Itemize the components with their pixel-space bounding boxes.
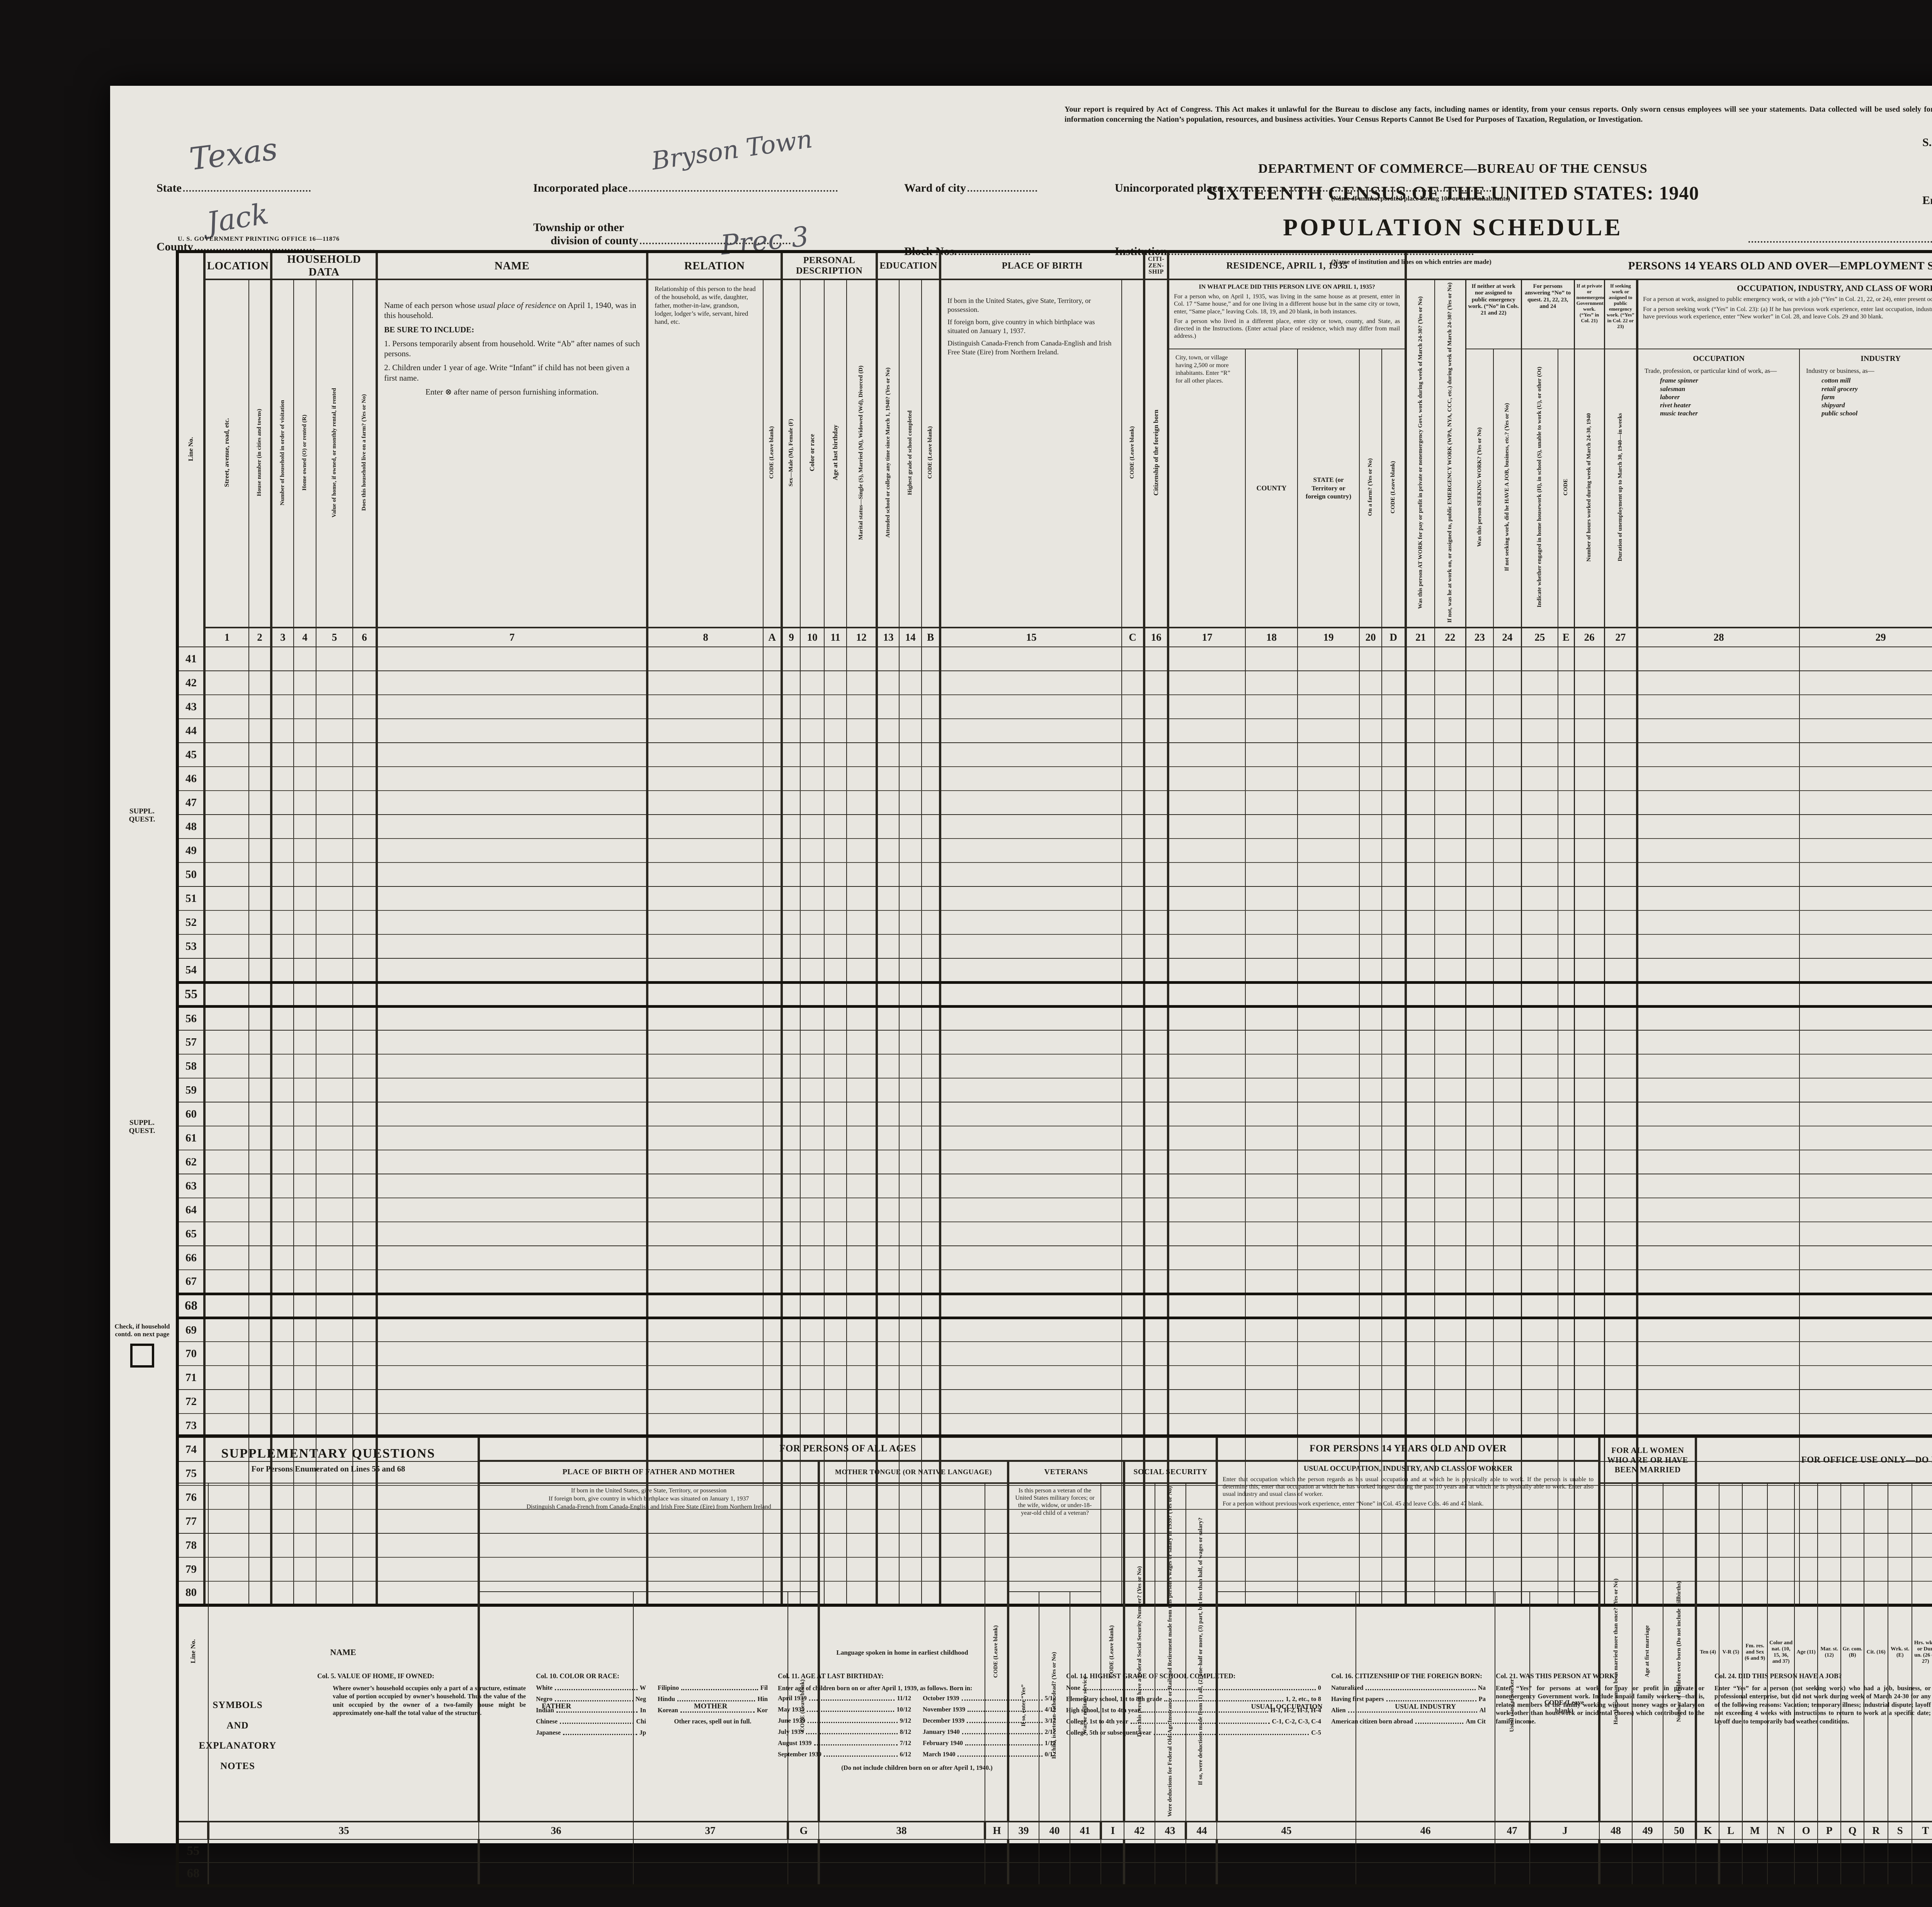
grid-cell bbox=[1466, 671, 1493, 695]
grid-cell bbox=[800, 647, 824, 671]
column-number: 36 bbox=[479, 1822, 633, 1839]
grid-cell bbox=[922, 1054, 940, 1078]
grid-cell bbox=[763, 1054, 782, 1078]
grid-cell bbox=[824, 839, 847, 862]
grid-cell bbox=[1245, 934, 1298, 958]
grid-cell bbox=[1558, 910, 1574, 934]
grid-cell bbox=[899, 1366, 922, 1390]
grid-cell bbox=[1493, 647, 1521, 671]
grid-cell bbox=[1574, 791, 1604, 815]
grid-cell bbox=[877, 1366, 899, 1390]
grid-cell bbox=[647, 1342, 763, 1366]
county-handwritten: Jack bbox=[204, 197, 271, 240]
column-number: 19 bbox=[1298, 628, 1359, 647]
grid-cell bbox=[647, 1126, 763, 1150]
grid-cell bbox=[1245, 1222, 1298, 1246]
grid-cell bbox=[271, 1102, 294, 1126]
grid-cell bbox=[1406, 839, 1435, 862]
col-farm: Does this household live on a farm? (Yes… bbox=[353, 279, 377, 628]
grid-cell bbox=[204, 1126, 249, 1150]
grid-cell bbox=[1144, 934, 1168, 958]
printing-office-line: U. S. GOVERNMENT PRINTING OFFICE 16—1187… bbox=[178, 236, 340, 243]
grid-cell bbox=[1466, 910, 1493, 934]
grid-cell bbox=[1637, 1246, 1799, 1270]
grid-cell bbox=[1767, 1863, 1794, 1886]
grid-cell bbox=[294, 862, 316, 886]
grid-cell bbox=[1604, 1390, 1637, 1414]
grid-cell bbox=[782, 958, 800, 982]
grid-cell bbox=[1493, 1366, 1521, 1390]
grid-cell bbox=[1122, 1318, 1144, 1342]
grid-cell bbox=[847, 886, 877, 910]
grid-cell bbox=[271, 1222, 294, 1246]
grid-cell bbox=[1435, 1198, 1466, 1222]
grid-cell bbox=[1604, 934, 1637, 958]
grid-cell bbox=[1466, 1318, 1493, 1342]
grid-cell bbox=[847, 862, 877, 886]
grid-cell bbox=[204, 982, 249, 1006]
grid-cell bbox=[877, 695, 899, 719]
sidebar-line: NOTES bbox=[168, 1756, 307, 1777]
grid-cell bbox=[824, 1030, 847, 1054]
grid-cell bbox=[1521, 815, 1558, 839]
grid-cell bbox=[204, 958, 249, 982]
column-number: 10 bbox=[800, 628, 824, 647]
grid-cell bbox=[940, 647, 1122, 671]
grid-cell bbox=[377, 886, 647, 910]
grid-cell bbox=[1245, 1198, 1298, 1222]
grid-cell bbox=[1298, 1294, 1359, 1318]
code-row: December 19393/12 bbox=[923, 1717, 1056, 1725]
grid-cell bbox=[922, 934, 940, 958]
col-household-number: Number of household in order of visitati… bbox=[271, 279, 294, 628]
grid-cell bbox=[1435, 934, 1466, 958]
grid-cell bbox=[824, 1078, 847, 1102]
grid-cell bbox=[353, 1270, 377, 1294]
grid-cell bbox=[1122, 647, 1144, 671]
grid-cell bbox=[647, 934, 763, 958]
grid-cell bbox=[1521, 1318, 1558, 1342]
grid-cell bbox=[1245, 1102, 1298, 1126]
grid-cell bbox=[249, 1270, 271, 1294]
grid-cell bbox=[922, 1366, 940, 1390]
grid-cell bbox=[800, 1198, 824, 1222]
grid-cell bbox=[204, 1318, 249, 1342]
grid-cell bbox=[1799, 934, 1932, 958]
grid-cell bbox=[294, 982, 316, 1006]
column-number: A bbox=[763, 628, 782, 647]
grid-cell bbox=[800, 695, 824, 719]
grid-cell bbox=[1144, 1078, 1168, 1102]
grid-cell bbox=[1144, 1102, 1168, 1126]
grid-cell bbox=[1008, 1839, 1039, 1863]
grid-cell bbox=[316, 1366, 353, 1390]
column-number: 15 bbox=[940, 628, 1122, 647]
grid-cell bbox=[1406, 695, 1435, 719]
grid-cell bbox=[249, 958, 271, 982]
grid-cell bbox=[1124, 1863, 1155, 1886]
grid-cell bbox=[940, 1174, 1122, 1198]
grid-cell bbox=[824, 958, 847, 982]
grid-cell bbox=[1122, 1246, 1144, 1270]
grid-cell bbox=[1435, 958, 1466, 982]
grid-cell bbox=[204, 1390, 249, 1414]
grid-cell bbox=[316, 1174, 353, 1198]
grid-cell bbox=[1122, 1366, 1144, 1390]
grid-cell bbox=[1382, 1102, 1406, 1126]
state-field: State bbox=[156, 182, 311, 195]
grid-cell bbox=[899, 862, 922, 886]
grid-cell bbox=[377, 1054, 647, 1078]
grid-cell bbox=[1604, 958, 1637, 982]
supp-parents-birthplace-instructions: If born in the United States, give State… bbox=[479, 1483, 819, 1592]
legal-notice: Your report is required by Act of Congre… bbox=[1065, 104, 1932, 124]
column-number: 48 bbox=[1599, 1822, 1632, 1839]
grid-cell bbox=[271, 1198, 294, 1222]
grid-cell bbox=[1144, 1030, 1168, 1054]
grid-cell bbox=[1359, 1054, 1382, 1078]
grid-cell bbox=[1435, 1126, 1466, 1150]
grid-cell bbox=[847, 839, 877, 862]
grid-cell bbox=[294, 1102, 316, 1126]
household-continued-checkbox[interactable] bbox=[130, 1344, 154, 1368]
grid-cell bbox=[249, 1294, 271, 1318]
grid-cell bbox=[1406, 1366, 1435, 1390]
grid-cell bbox=[940, 1150, 1122, 1174]
grid-cell bbox=[294, 671, 316, 695]
grid-cell bbox=[1122, 1270, 1144, 1294]
grid-cell bbox=[940, 743, 1122, 767]
column-number: H bbox=[985, 1822, 1008, 1839]
grid-cell bbox=[647, 1318, 763, 1342]
grid-cell bbox=[316, 1030, 353, 1054]
grid-cell bbox=[782, 886, 800, 910]
grid-cell bbox=[647, 1006, 763, 1030]
grid-cell bbox=[1637, 982, 1799, 1006]
grid-cell bbox=[763, 862, 782, 886]
grid-cell bbox=[1298, 839, 1359, 862]
grid-cell bbox=[824, 1270, 847, 1294]
grid-cell bbox=[1521, 1030, 1558, 1054]
grid-cell bbox=[847, 1270, 877, 1294]
grid-cell bbox=[1298, 791, 1359, 815]
grid-cell bbox=[1382, 1390, 1406, 1414]
suppl-quest-left-68: SUPPL.QUEST. bbox=[114, 1117, 170, 1138]
grid-cell bbox=[1521, 1270, 1558, 1294]
grid-cell bbox=[1298, 886, 1359, 910]
grid-cell bbox=[1558, 767, 1574, 791]
grid-cell bbox=[1435, 1342, 1466, 1366]
grid-cell bbox=[1466, 695, 1493, 719]
line-number: 58 bbox=[177, 1054, 204, 1078]
grid-cell bbox=[1245, 791, 1298, 815]
grid-cell bbox=[204, 910, 249, 934]
column-number: 40 bbox=[1039, 1822, 1070, 1839]
grid-cell bbox=[1144, 647, 1168, 671]
grid-cell bbox=[922, 815, 940, 839]
column-number: S bbox=[1888, 1822, 1912, 1839]
grid-cell bbox=[1298, 1246, 1359, 1270]
grid-cell bbox=[1888, 1839, 1912, 1863]
grid-cell bbox=[800, 934, 824, 958]
grid-cell bbox=[1466, 1246, 1493, 1270]
grid-cell bbox=[633, 1863, 788, 1886]
grid-cell bbox=[1406, 1054, 1435, 1078]
grid-cell bbox=[204, 934, 249, 958]
grid-cell bbox=[1435, 1150, 1466, 1174]
grid-cell bbox=[377, 695, 647, 719]
grid-cell bbox=[1359, 1078, 1382, 1102]
column-number: 27 bbox=[1604, 628, 1637, 647]
grid-cell bbox=[1298, 767, 1359, 791]
grid-cell bbox=[1298, 1390, 1359, 1414]
grid-cell bbox=[782, 839, 800, 862]
grid-cell bbox=[847, 934, 877, 958]
col-residence-code: CODE (Leave blank) bbox=[1382, 349, 1406, 628]
grid-cell bbox=[1493, 1054, 1521, 1078]
grid-cell bbox=[877, 1294, 899, 1318]
grid-cell bbox=[1168, 1102, 1245, 1126]
grid-cell bbox=[1663, 1839, 1696, 1863]
grid-cell bbox=[377, 1318, 647, 1342]
grid-cell bbox=[1168, 1198, 1245, 1222]
grid-cell bbox=[1637, 767, 1799, 791]
grid-cell bbox=[1168, 1342, 1245, 1366]
grid-cell bbox=[1245, 1270, 1298, 1294]
column-number: B bbox=[922, 628, 940, 647]
grid-cell bbox=[1604, 1054, 1637, 1078]
grid-cell bbox=[204, 1270, 249, 1294]
grid-cell bbox=[647, 958, 763, 982]
grid-cell bbox=[1466, 1366, 1493, 1390]
grid-cell bbox=[1245, 1054, 1298, 1078]
grid-cell bbox=[1637, 1294, 1799, 1318]
grid-cell bbox=[316, 1246, 353, 1270]
grid-cell bbox=[271, 1030, 294, 1054]
grid-cell bbox=[1382, 1366, 1406, 1390]
ward-blank bbox=[968, 188, 1037, 192]
grid-cell bbox=[1493, 791, 1521, 815]
grid-cell bbox=[294, 1078, 316, 1102]
grid-cell bbox=[204, 791, 249, 815]
grid-cell bbox=[800, 910, 824, 934]
grid-cell bbox=[294, 1126, 316, 1150]
grid-cell bbox=[647, 791, 763, 815]
grid-cell bbox=[847, 1174, 877, 1198]
column-number: 42 bbox=[1124, 1822, 1155, 1839]
grid-cell bbox=[1144, 1294, 1168, 1318]
col-street: Street, avenue, road, etc. bbox=[204, 279, 249, 628]
grid-cell bbox=[249, 1150, 271, 1174]
line-number: 68 bbox=[177, 1863, 208, 1886]
grid-cell bbox=[824, 1198, 847, 1222]
grid-cell bbox=[877, 1150, 899, 1174]
grid-cell bbox=[1493, 1342, 1521, 1366]
supp-band-veterans: VETERANS bbox=[1008, 1461, 1124, 1483]
grid-cell bbox=[1493, 1390, 1521, 1414]
grid-cell bbox=[1435, 1030, 1466, 1054]
grid-cell bbox=[1466, 719, 1493, 743]
grid-cell bbox=[1406, 1006, 1435, 1030]
grid-cell bbox=[1493, 1006, 1521, 1030]
grid-cell bbox=[1637, 719, 1799, 743]
grid-cell bbox=[800, 719, 824, 743]
grid-cell bbox=[1168, 934, 1245, 958]
grid-cell bbox=[316, 695, 353, 719]
grid-cell bbox=[1382, 743, 1406, 767]
grid-cell bbox=[1122, 958, 1144, 982]
column-number: C bbox=[1122, 628, 1144, 647]
code-row: June 19399/12 bbox=[778, 1717, 911, 1725]
grid-cell bbox=[1359, 719, 1382, 743]
grid-cell bbox=[1604, 1006, 1637, 1030]
grid-cell bbox=[353, 1078, 377, 1102]
grid-cell bbox=[1767, 1839, 1794, 1863]
grid-cell bbox=[899, 839, 922, 862]
grid-cell bbox=[271, 982, 294, 1006]
population-schedule-table: Line No. LOCATION HOUSEHOLD DATA NAME RE… bbox=[176, 250, 1932, 1607]
grid-cell bbox=[294, 1198, 316, 1222]
grid-cell bbox=[294, 1006, 316, 1030]
example-item: music teacher bbox=[1660, 409, 1793, 417]
grid-cell bbox=[353, 743, 377, 767]
grid-cell bbox=[1359, 862, 1382, 886]
grid-cell bbox=[1382, 1198, 1406, 1222]
grid-cell bbox=[1356, 1839, 1495, 1863]
grid-cell bbox=[1155, 1863, 1186, 1886]
grid-cell bbox=[782, 1342, 800, 1366]
grid-cell bbox=[1435, 719, 1466, 743]
grid-cell bbox=[316, 1198, 353, 1222]
grid-cell bbox=[1558, 1150, 1574, 1174]
grid-cell bbox=[824, 1102, 847, 1126]
grid-cell bbox=[1637, 1030, 1799, 1054]
grid-cell bbox=[647, 671, 763, 695]
grid-cell bbox=[1637, 886, 1799, 910]
grid-cell bbox=[1696, 1863, 1719, 1886]
grid-cell bbox=[940, 671, 1122, 695]
grid-cell bbox=[1574, 1006, 1604, 1030]
grid-cell bbox=[1359, 886, 1382, 910]
grid-cell bbox=[271, 647, 294, 671]
grid-cell bbox=[1493, 1270, 1521, 1294]
grid-cell bbox=[1359, 647, 1382, 671]
grid-cell bbox=[899, 1246, 922, 1270]
grid-cell bbox=[800, 671, 824, 695]
grid-cell bbox=[1521, 839, 1558, 862]
grid-cell bbox=[1604, 1294, 1637, 1318]
grid-cell bbox=[294, 1030, 316, 1054]
grid-cell bbox=[249, 1078, 271, 1102]
grid-cell bbox=[377, 1198, 647, 1222]
grid-cell bbox=[1637, 1366, 1799, 1390]
grid-cell bbox=[1406, 1294, 1435, 1318]
grid-cell bbox=[249, 934, 271, 958]
column-number: 3 bbox=[271, 628, 294, 647]
grid-cell bbox=[1493, 839, 1521, 862]
grid-cell bbox=[294, 1390, 316, 1414]
grid-cell bbox=[1521, 767, 1558, 791]
grid-cell bbox=[1382, 815, 1406, 839]
grid-cell bbox=[1604, 743, 1637, 767]
grid-cell bbox=[1558, 1222, 1574, 1246]
grid-cell bbox=[1070, 1839, 1101, 1863]
grid-cell bbox=[647, 767, 763, 791]
column-number: 9 bbox=[782, 628, 800, 647]
grid-cell bbox=[922, 886, 940, 910]
grid-cell bbox=[1521, 671, 1558, 695]
grid-cell bbox=[800, 1390, 824, 1414]
grid-cell bbox=[877, 1102, 899, 1126]
grid-cell bbox=[1359, 767, 1382, 791]
grid-cell bbox=[1466, 743, 1493, 767]
grid-cell bbox=[824, 934, 847, 958]
col-occupation-header: OCCUPATION Trade, profession, or particu… bbox=[1637, 349, 1799, 628]
grid-cell bbox=[877, 862, 899, 886]
grid-cell bbox=[763, 743, 782, 767]
grid-cell bbox=[271, 695, 294, 719]
grid-cell bbox=[824, 1126, 847, 1150]
grid-cell bbox=[1637, 1198, 1799, 1222]
grid-cell bbox=[763, 934, 782, 958]
grid-cell bbox=[1122, 767, 1144, 791]
line-number: 43 bbox=[177, 695, 204, 719]
grid-cell bbox=[1574, 1366, 1604, 1390]
grid-cell bbox=[847, 1318, 877, 1342]
grid-cell bbox=[922, 695, 940, 719]
grid-cell bbox=[1466, 1222, 1493, 1246]
col-city-town-village: City, town, or village having 2,500 or m… bbox=[1168, 349, 1245, 628]
grid-cell bbox=[1637, 743, 1799, 767]
grid-cell bbox=[1604, 1198, 1637, 1222]
grid-cell bbox=[1794, 1863, 1818, 1886]
grid-cell bbox=[1382, 1318, 1406, 1342]
grid-cell bbox=[1604, 982, 1637, 1006]
grid-cell bbox=[316, 910, 353, 934]
band-relation: RELATION bbox=[647, 252, 782, 279]
note-col16: Col. 16. CITIZENSHIP OF THE FOREIGN BORN… bbox=[1331, 1672, 1486, 1729]
grid-cell bbox=[271, 1078, 294, 1102]
grid-cell bbox=[788, 1839, 819, 1863]
column-number: D bbox=[1382, 628, 1406, 647]
grid-cell bbox=[788, 1863, 819, 1886]
grid-cell bbox=[1245, 1366, 1298, 1390]
grid-cell bbox=[1558, 815, 1574, 839]
household-continued-note: Check, if household contd. on next page bbox=[113, 1320, 171, 1370]
grid-cell bbox=[824, 1150, 847, 1174]
grid-cell bbox=[1359, 1246, 1382, 1270]
line-number: 70 bbox=[177, 1342, 204, 1366]
suppl-quest-left-55: SUPPL.QUEST. bbox=[114, 805, 170, 826]
grid-cell bbox=[1604, 815, 1637, 839]
band-neither-at-work: If neither at work nor assigned to publi… bbox=[1466, 279, 1521, 349]
grid-cell bbox=[1558, 958, 1574, 982]
grid-cell bbox=[782, 1246, 800, 1270]
grid-cell bbox=[647, 1366, 763, 1390]
code-row: AlienAl bbox=[1331, 1706, 1486, 1714]
grid-cell bbox=[1637, 791, 1799, 815]
grid-cell bbox=[1574, 839, 1604, 862]
grid-cell bbox=[1637, 695, 1799, 719]
grid-cell bbox=[1493, 934, 1521, 958]
grid-cell bbox=[1435, 671, 1466, 695]
grid-cell bbox=[316, 934, 353, 958]
grid-cell bbox=[1168, 982, 1245, 1006]
grid-cell bbox=[1558, 1342, 1574, 1366]
grid-cell bbox=[377, 982, 647, 1006]
grid-cell bbox=[1466, 647, 1493, 671]
grid-cell bbox=[1382, 1246, 1406, 1270]
